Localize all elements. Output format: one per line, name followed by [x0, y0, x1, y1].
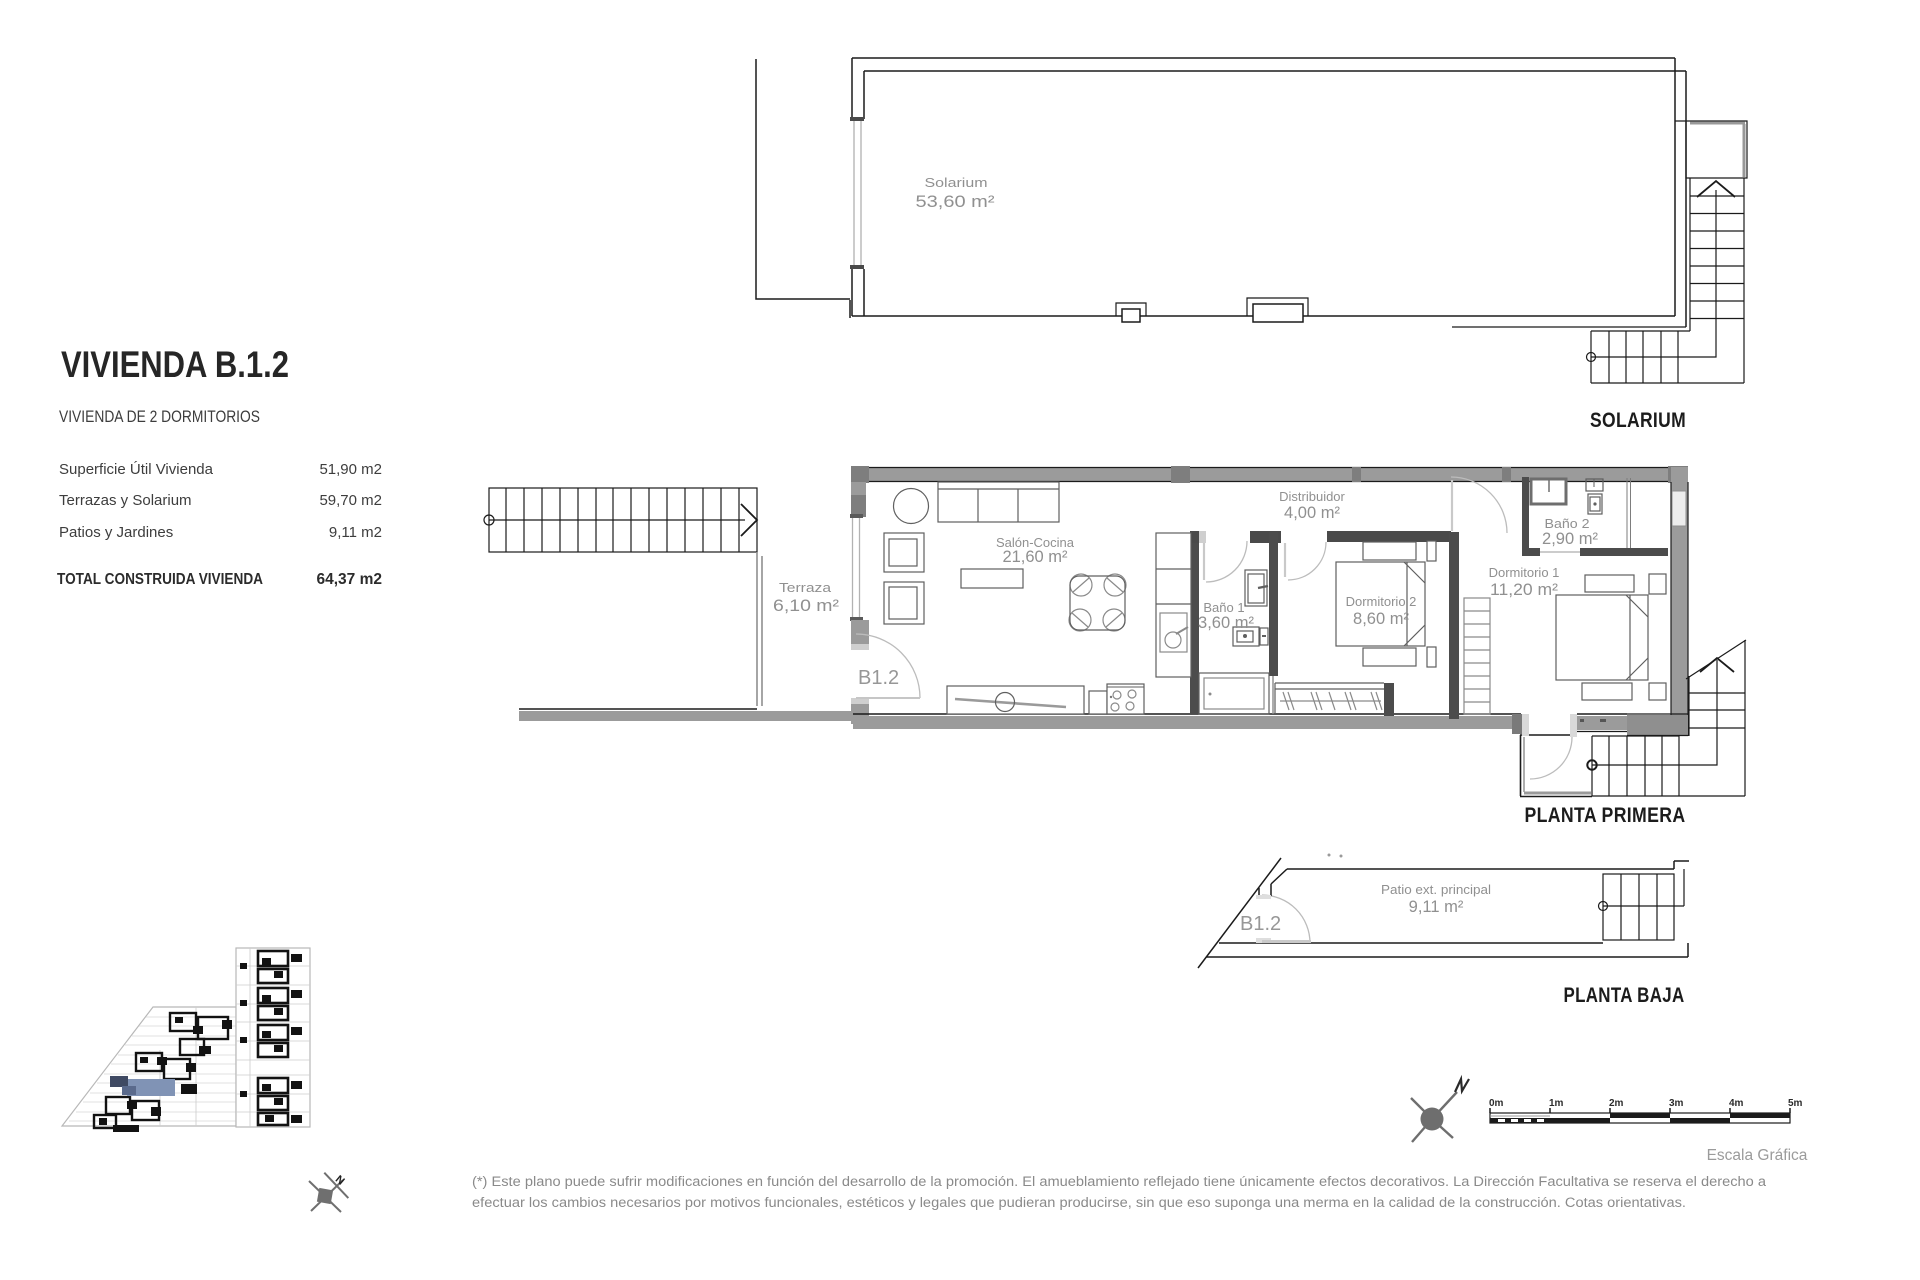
svg-text:Patio ext. principal: Patio ext. principal [1381, 882, 1491, 897]
svg-text:efectuar los cambios necesario: efectuar los cambios necesarios por moti… [472, 1195, 1686, 1210]
svg-text:6,10 m²: 6,10 m² [773, 597, 840, 615]
svg-text:21,60 m²: 21,60 m² [1002, 548, 1068, 566]
svg-text:N: N [333, 1173, 347, 1187]
svg-text:9,11 m²: 9,11 m² [1409, 898, 1464, 916]
svg-text:Solarium: Solarium [925, 175, 988, 190]
svg-text:(*) Este plano puede sufrir mo: (*) Este plano puede sufrir modificacion… [472, 1174, 1767, 1189]
svg-text:VIVIENDA DE 2 DORMITORIOS: VIVIENDA DE 2 DORMITORIOS [59, 408, 260, 426]
svg-text:0m: 0m [1489, 1098, 1504, 1109]
svg-text:Terrazas y Solarium: Terrazas y Solarium [59, 492, 192, 509]
svg-text:59,70 m2: 59,70 m2 [319, 492, 382, 509]
svg-text:B1.2: B1.2 [1240, 913, 1281, 935]
svg-text:2,90 m²: 2,90 m² [1542, 530, 1598, 548]
svg-text:Patios y Jardines: Patios y Jardines [59, 524, 173, 541]
svg-text:64,37 m2: 64,37 m2 [317, 571, 383, 588]
svg-text:3m: 3m [1669, 1098, 1684, 1109]
svg-text:Baño 1: Baño 1 [1203, 600, 1244, 615]
svg-text:Terraza: Terraza [779, 580, 832, 595]
svg-text:B1.2: B1.2 [858, 667, 899, 689]
svg-text:TOTAL CONSTRUIDA VIVIENDA: TOTAL CONSTRUIDA VIVIENDA [57, 571, 263, 588]
svg-text:4,00 m²: 4,00 m² [1284, 504, 1340, 522]
svg-text:53,60 m²: 53,60 m² [916, 193, 996, 211]
svg-text:Dormitorio 1: Dormitorio 1 [1489, 565, 1560, 580]
svg-text:11,20 m²: 11,20 m² [1490, 581, 1559, 599]
svg-text:Distribuidor: Distribuidor [1279, 489, 1345, 504]
svg-text:VIVIENDA B.1.2: VIVIENDA B.1.2 [61, 344, 289, 385]
svg-text:3,60 m²: 3,60 m² [1198, 614, 1254, 632]
svg-text:2m: 2m [1609, 1098, 1624, 1109]
svg-text:Escala Gráfica: Escala Gráfica [1707, 1147, 1808, 1164]
svg-text:PLANTA PRIMERA: PLANTA PRIMERA [1525, 804, 1686, 827]
svg-text:1m: 1m [1549, 1098, 1564, 1109]
svg-text:SOLARIUM: SOLARIUM [1590, 409, 1686, 432]
svg-text:Superficie Útil Vivienda: Superficie Útil Vivienda [59, 461, 214, 478]
svg-text:PLANTA BAJA: PLANTA BAJA [1564, 984, 1685, 1007]
svg-text:5m: 5m [1788, 1098, 1803, 1109]
svg-text:Baño 2: Baño 2 [1545, 516, 1590, 531]
svg-text:51,90 m2: 51,90 m2 [319, 461, 382, 478]
svg-text:8,60 m²: 8,60 m² [1353, 610, 1409, 628]
svg-text:4m: 4m [1729, 1098, 1744, 1109]
svg-text:Dormitorio 2: Dormitorio 2 [1346, 594, 1417, 609]
svg-text:9,11 m2: 9,11 m2 [329, 524, 382, 541]
